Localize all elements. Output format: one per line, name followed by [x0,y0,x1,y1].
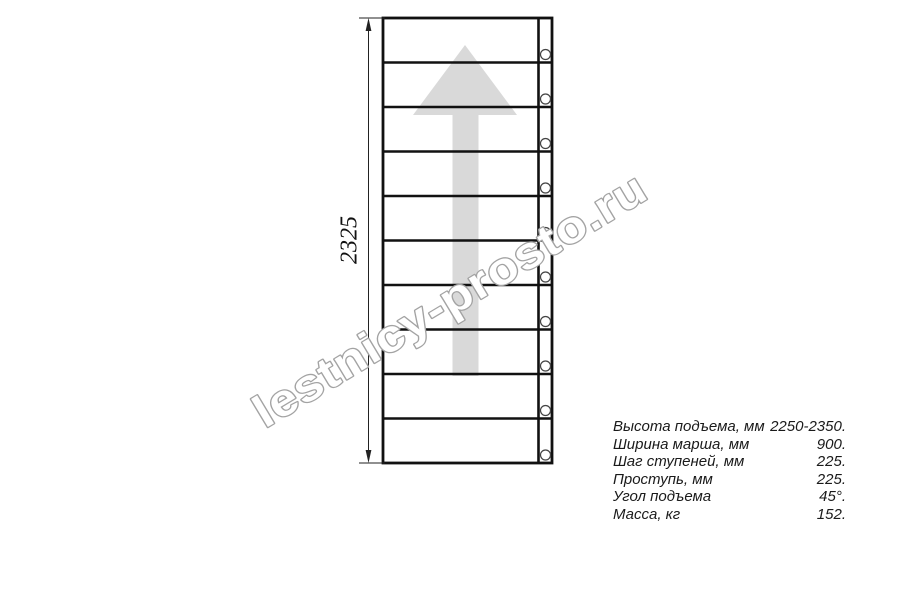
dimension-arrow-up-icon [366,18,372,31]
spec-value: 225. [817,453,846,471]
spec-row: Шаг ступеней, мм225. [613,453,846,471]
specs-table: Высота подъема, мм2250-2350.Ширина марша… [613,418,846,523]
spec-value: 225. [817,471,846,489]
spec-label: Шаг ступеней, мм [613,453,744,471]
baluster-circle [541,317,551,327]
spec-row: Высота подъема, мм2250-2350. [613,418,846,436]
dimension-arrow-down-icon [366,450,372,463]
staircase-spec-sheet: 2325 lestnicy-prosto.ru Высота подъема, … [0,0,900,600]
spec-row: Ширина марша, мм900. [613,436,846,454]
baluster-circle [541,50,551,60]
baluster-circle [541,361,551,371]
baluster-circle [541,94,551,104]
spec-value: 45°. [819,488,846,506]
baluster-circle [541,450,551,460]
spec-row: Проступь, мм225. [613,471,846,489]
spec-value: 900. [817,436,846,454]
dimension-label: 2325 [337,216,363,264]
baluster-circle [541,139,551,149]
spec-label: Проступь, мм [613,471,713,489]
spec-value: 152. [817,506,846,524]
spec-label: Высота подъема, мм [613,418,765,436]
watermark-text: lestnicy-prosto.ru [244,162,656,437]
spec-row: Масса, кг152. [613,506,846,524]
spec-value: 2250-2350. [770,418,846,436]
spec-row: Угол подъема45°. [613,488,846,506]
spec-label: Масса, кг [613,506,680,524]
spec-label: Ширина марша, мм [613,436,749,454]
baluster-circle [541,406,551,416]
height-dimension: 2325 [337,18,386,463]
spec-label: Угол подъема [613,488,711,506]
baluster-circle [541,183,551,193]
